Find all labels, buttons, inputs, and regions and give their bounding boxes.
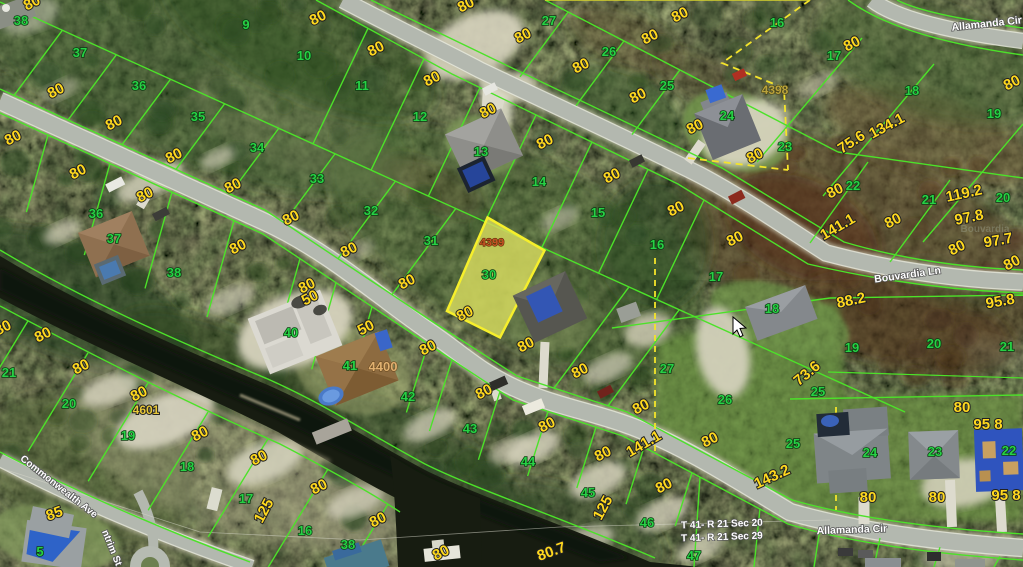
svg-text:25: 25 (786, 436, 800, 451)
svg-text:38: 38 (167, 265, 181, 280)
svg-text:18: 18 (765, 301, 779, 316)
svg-text:4400: 4400 (369, 359, 398, 374)
svg-text:37: 37 (73, 45, 87, 60)
svg-text:80: 80 (929, 489, 946, 506)
svg-text:18: 18 (905, 83, 919, 98)
svg-text:14: 14 (532, 174, 547, 189)
svg-text:38: 38 (341, 537, 355, 552)
svg-text:36: 36 (89, 206, 103, 221)
svg-text:31: 31 (424, 233, 438, 248)
svg-text:10: 10 (297, 48, 311, 63)
svg-text:16: 16 (770, 15, 784, 30)
svg-text:Bouvardia: Bouvardia (961, 224, 1010, 235)
svg-text:19: 19 (121, 428, 135, 443)
svg-text:35: 35 (191, 109, 205, 124)
svg-text:27: 27 (542, 13, 556, 28)
svg-text:23: 23 (928, 444, 942, 459)
svg-text:9: 9 (242, 17, 249, 32)
svg-text:11: 11 (355, 78, 369, 93)
svg-text:19: 19 (987, 106, 1001, 121)
svg-text:20: 20 (62, 396, 76, 411)
svg-text:30: 30 (482, 267, 496, 282)
svg-text:43: 43 (463, 421, 477, 436)
svg-text:47: 47 (687, 548, 701, 563)
svg-text:22: 22 (846, 178, 860, 193)
svg-text:34: 34 (250, 140, 265, 155)
svg-text:32: 32 (364, 203, 378, 218)
svg-text:95 8: 95 8 (991, 487, 1020, 504)
svg-text:19: 19 (845, 340, 859, 355)
svg-text:16: 16 (650, 237, 664, 252)
svg-text:25: 25 (811, 384, 825, 399)
svg-text:12: 12 (413, 109, 427, 124)
svg-text:15: 15 (591, 205, 605, 220)
svg-text:4398: 4398 (762, 83, 789, 97)
svg-text:24: 24 (863, 445, 878, 460)
svg-text:22: 22 (1002, 443, 1016, 458)
svg-text:20: 20 (996, 190, 1010, 205)
svg-text:41: 41 (343, 358, 357, 373)
svg-text:40: 40 (284, 325, 298, 340)
svg-text:46: 46 (640, 515, 654, 530)
svg-text:17: 17 (239, 491, 253, 506)
svg-text:18: 18 (180, 459, 194, 474)
svg-text:4601: 4601 (133, 403, 160, 417)
svg-text:21: 21 (1000, 339, 1014, 354)
svg-text:5: 5 (36, 544, 43, 559)
svg-text:17: 17 (709, 269, 723, 284)
svg-text:23: 23 (778, 139, 792, 154)
svg-text:25: 25 (660, 78, 674, 93)
svg-text:36: 36 (132, 78, 146, 93)
svg-text:44: 44 (521, 454, 536, 469)
svg-text:13: 13 (474, 144, 488, 159)
svg-text:33: 33 (310, 171, 324, 186)
svg-text:38: 38 (14, 13, 28, 28)
svg-text:Allamanda Cir: Allamanda Cir (816, 523, 887, 537)
svg-text:16: 16 (298, 523, 312, 538)
svg-text:17: 17 (827, 48, 841, 63)
svg-text:20: 20 (927, 336, 941, 351)
svg-text:26: 26 (602, 44, 616, 59)
svg-text:37: 37 (107, 231, 121, 246)
svg-text:21: 21 (2, 365, 16, 380)
svg-text:45: 45 (581, 485, 595, 500)
svg-text:80: 80 (954, 399, 971, 416)
svg-text:42: 42 (401, 389, 415, 404)
svg-text:26: 26 (718, 392, 732, 407)
svg-text:80: 80 (860, 489, 877, 506)
svg-text:95 8: 95 8 (973, 416, 1002, 433)
svg-text:27: 27 (660, 361, 674, 376)
svg-text:24: 24 (720, 108, 735, 123)
svg-text:21: 21 (922, 192, 936, 207)
svg-text:4399: 4399 (480, 237, 504, 249)
